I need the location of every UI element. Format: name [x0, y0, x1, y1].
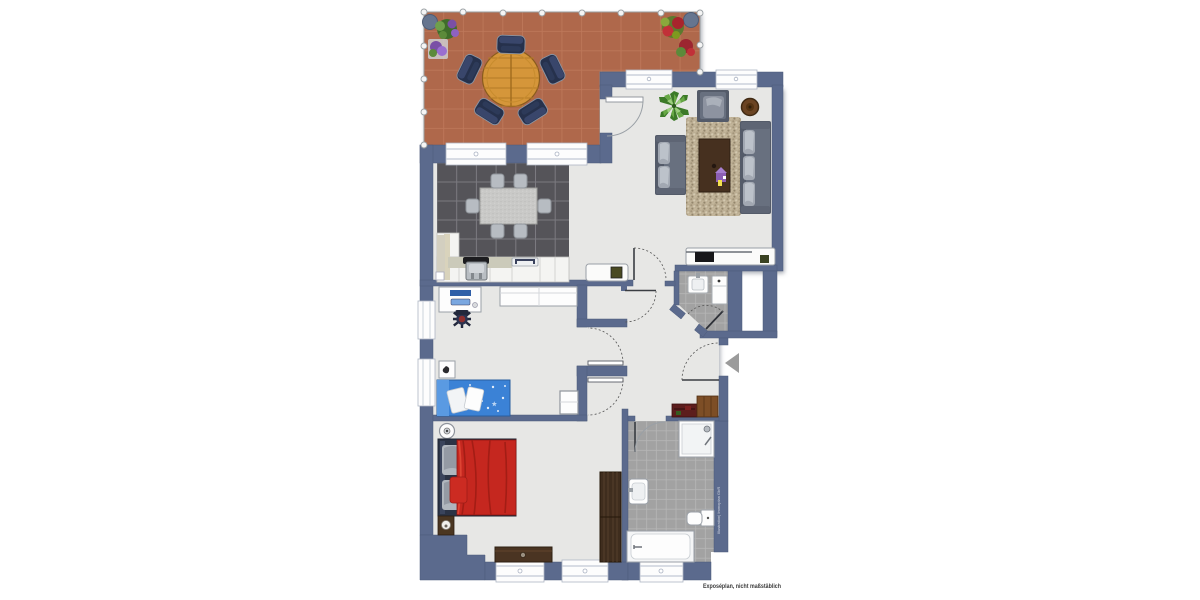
svg-text:Illustration| Immoplan GbR: Illustration| Immoplan GbR — [716, 487, 721, 534]
svg-text:Exposéplan, nicht maßstäblich: Exposéplan, nicht maßstäblich — [703, 583, 781, 590]
